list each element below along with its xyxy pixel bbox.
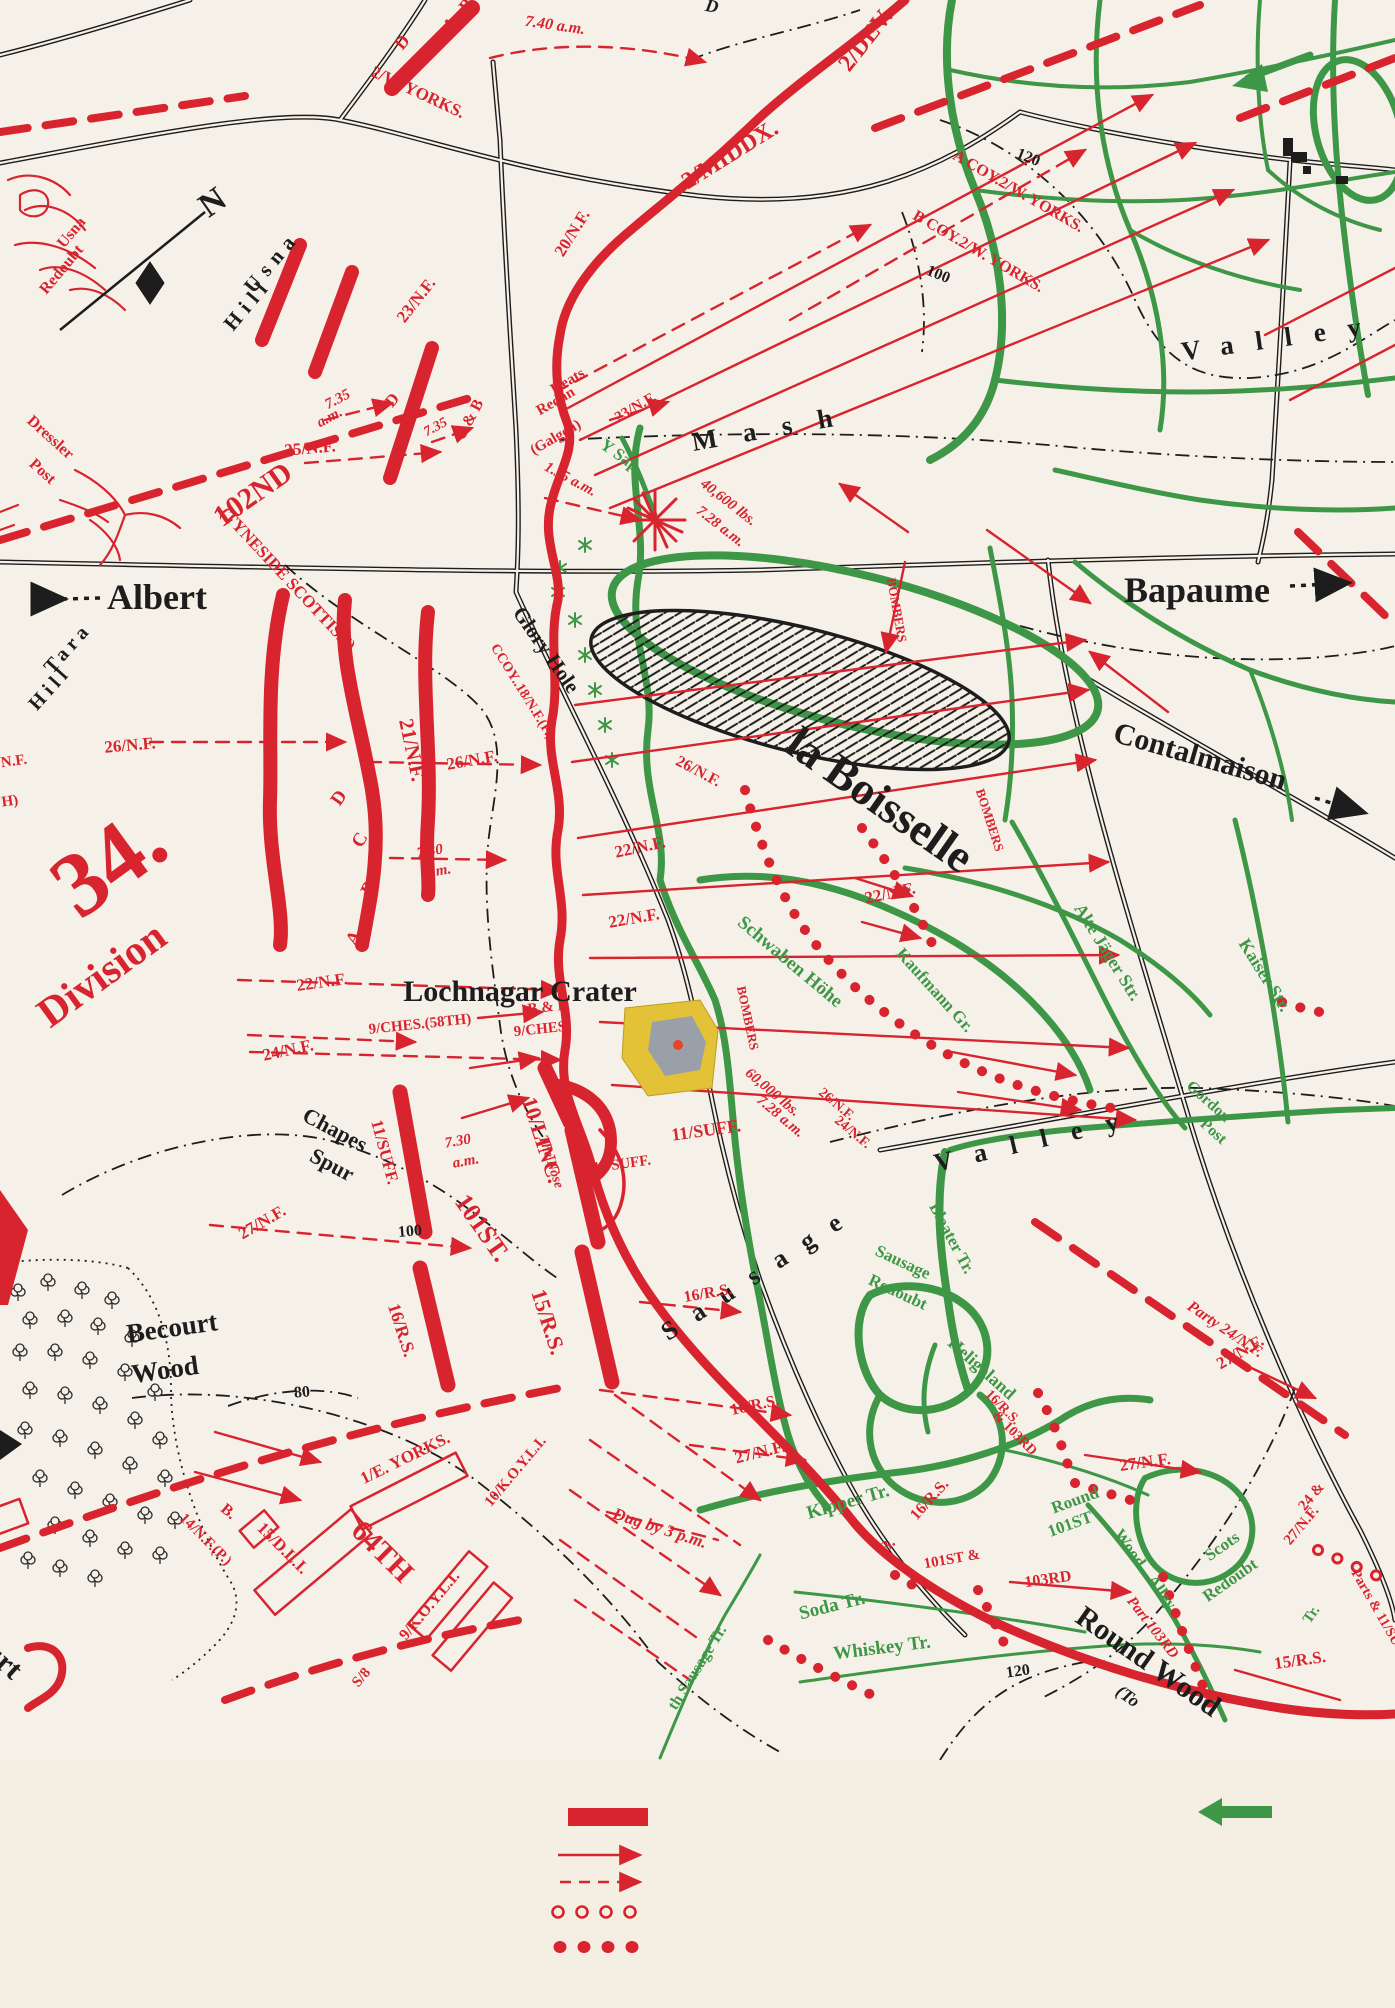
- la-boisselle-village: [576, 578, 1023, 802]
- map-page: UsnaRedoubtDresslerPostNUsnaHillTaraHill…: [0, 0, 1395, 2008]
- mine-burst: [625, 490, 685, 550]
- lochnagar-crater: [622, 1000, 718, 1096]
- support-arrows: [150, 47, 1085, 1680]
- position-bars: [262, 8, 612, 1385]
- legend-panel: BRITISH:- Positions before the Assault(7…: [0, 1760, 1395, 2008]
- roads-layer: [0, 0, 1395, 1635]
- night-line-dots: [745, 790, 1336, 1710]
- legend-german-arrow-symbol: [1198, 1798, 1272, 1826]
- dressler-post-trenches: [0, 470, 180, 565]
- becourt-wood: [0, 1260, 237, 1680]
- legend-bar-symbol: [568, 1808, 648, 1826]
- compass-north: [60, 212, 205, 330]
- legend-open-circles-symbol: [553, 1907, 636, 1918]
- map-canvas: [0, 0, 1395, 1760]
- legend-symbols: [0, 1760, 1395, 2008]
- legend-dots-symbol: [554, 1941, 639, 1953]
- german-trenches-layer: [552, 0, 1395, 1758]
